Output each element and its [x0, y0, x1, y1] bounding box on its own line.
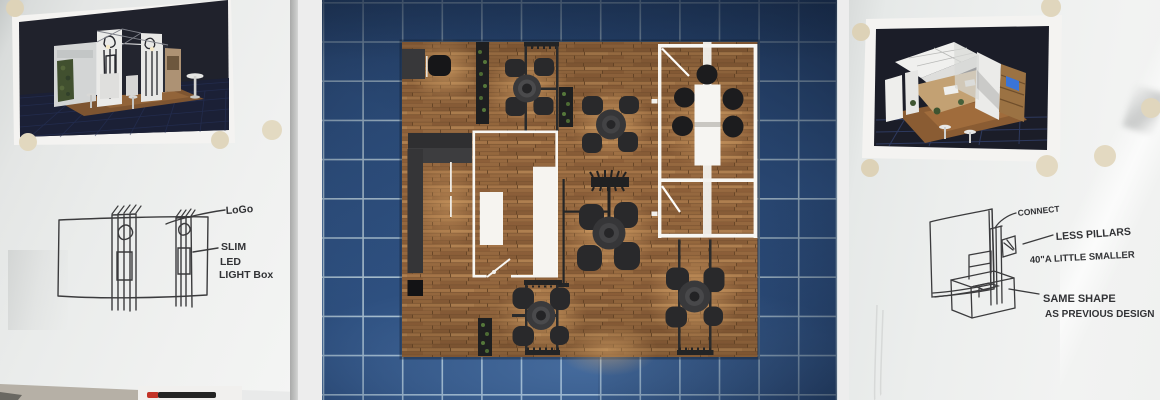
svg-text:LESS PILLARS: LESS PILLARS [1055, 226, 1131, 243]
svg-text:LoGo: LoGo [225, 203, 253, 217]
svg-text:LIGHT Box: LIGHT Box [219, 269, 273, 281]
svg-text:CONNECT: CONNECT [1017, 204, 1061, 218]
svg-text:LED: LED [220, 256, 241, 268]
svg-text:40"A LITTLE SMALLER: 40"A LITTLE SMALLER [1030, 250, 1136, 266]
svg-text:SAME SHAPE: SAME SHAPE [1043, 293, 1116, 305]
svg-text:AS PREVIOUS DESIGN: AS PREVIOUS DESIGN [1045, 309, 1154, 320]
svg-text:SLIM: SLIM [221, 241, 246, 253]
